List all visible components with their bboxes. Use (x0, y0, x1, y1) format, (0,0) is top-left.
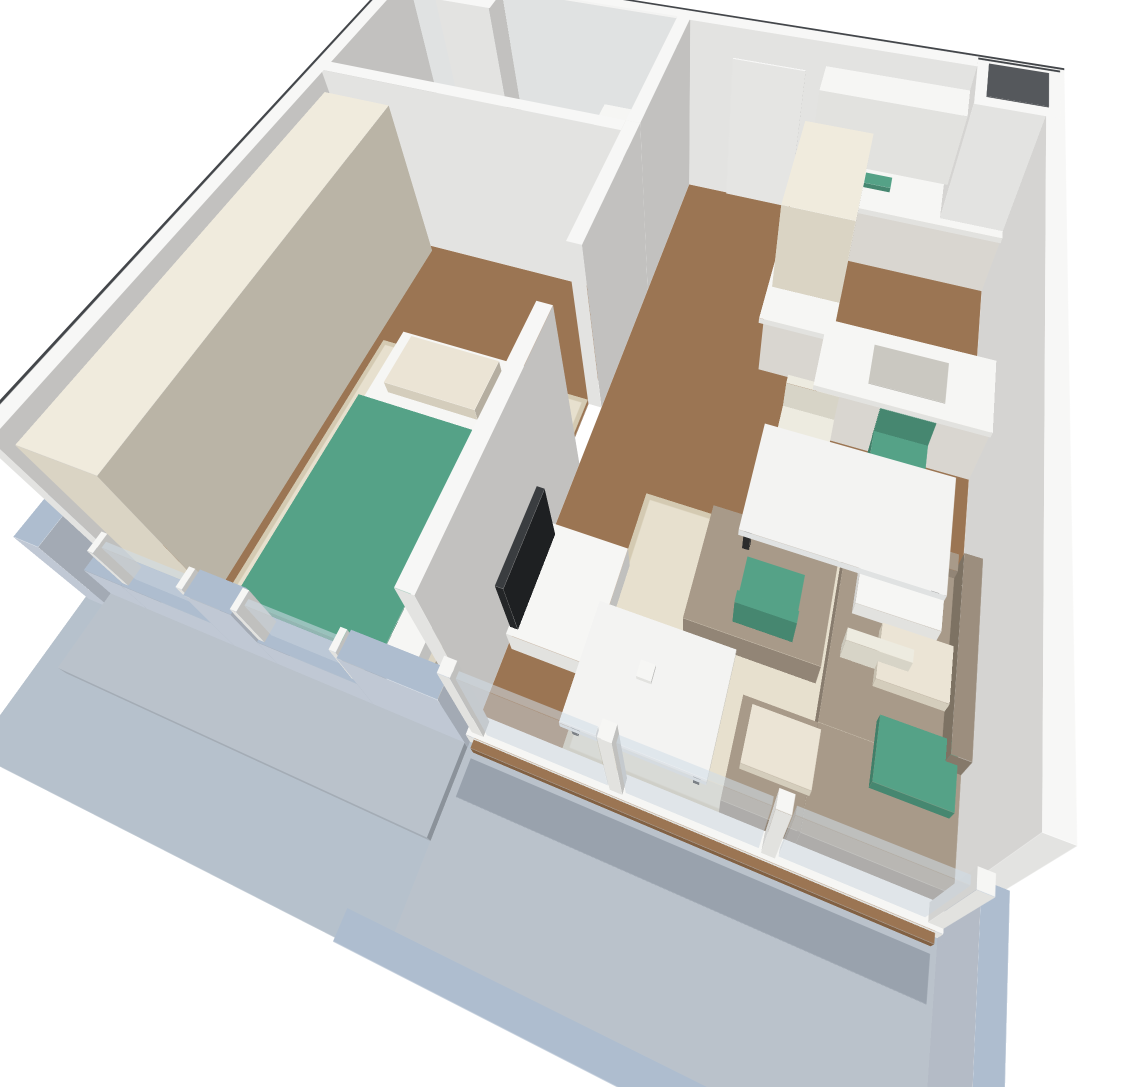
balcony-drain-grate-east (927, 954, 931, 1005)
balcony-drain-grate-west (456, 758, 471, 797)
wall-east-top (1042, 76, 1077, 846)
floorplan-render-canvas (0, 0, 1140, 1087)
balcony-parapet-south-top (333, 908, 1002, 1087)
scene-fit-wrapper (0, 0, 1140, 1087)
perspective-stage (0, 0, 1140, 1087)
apartment-3d-model (0, 123, 1000, 1087)
